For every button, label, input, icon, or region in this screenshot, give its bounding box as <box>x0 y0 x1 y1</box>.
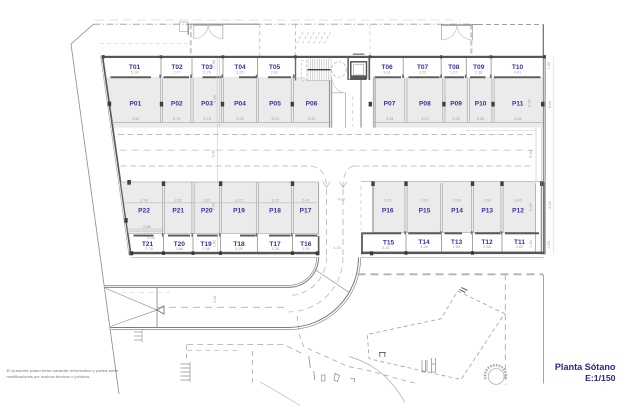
svg-text:3.23: 3.23 <box>384 199 391 203</box>
svg-text:2.78: 2.78 <box>145 247 152 251</box>
svg-text:2.75: 2.75 <box>173 117 180 121</box>
svg-text:2.88: 2.88 <box>176 247 183 251</box>
svg-text:P10: P10 <box>475 101 487 108</box>
svg-text:5.00: 5.00 <box>212 150 216 157</box>
svg-text:P01: P01 <box>130 101 142 108</box>
svg-text:P13: P13 <box>481 208 493 215</box>
svg-text:P19: P19 <box>233 208 245 215</box>
svg-text:2.77: 2.77 <box>173 71 180 75</box>
svg-text:4.00: 4.00 <box>213 296 217 303</box>
svg-text:3.23: 3.23 <box>421 199 428 203</box>
svg-text:4.41: 4.41 <box>514 71 521 75</box>
svg-text:5.00: 5.00 <box>548 101 552 108</box>
svg-text:3.23: 3.23 <box>271 117 278 121</box>
svg-text:2.37: 2.37 <box>450 71 457 75</box>
svg-text:P06: P06 <box>306 101 318 108</box>
svg-text:3.25: 3.25 <box>236 71 243 75</box>
svg-text:3.82: 3.82 <box>516 245 523 249</box>
svg-text:2.88: 2.88 <box>483 245 490 249</box>
svg-text:4.20: 4.20 <box>333 246 340 250</box>
svg-text:5.00: 5.00 <box>529 150 533 157</box>
svg-text:1.80: 1.80 <box>547 62 551 69</box>
svg-text:P05: P05 <box>269 101 281 108</box>
svg-text:3.23: 3.23 <box>236 117 243 121</box>
svg-text:P16: P16 <box>382 208 394 215</box>
svg-text:Planta Sótano: Planta Sótano <box>555 362 616 372</box>
svg-text:P18: P18 <box>269 208 281 215</box>
svg-text:3.23: 3.23 <box>271 199 278 203</box>
svg-text:P12: P12 <box>512 208 524 215</box>
svg-text:2.62: 2.62 <box>203 199 210 203</box>
svg-text:1.60: 1.60 <box>213 240 217 247</box>
svg-text:P07: P07 <box>384 101 396 108</box>
svg-text:2.43: 2.43 <box>302 199 309 203</box>
svg-text:2.76: 2.76 <box>203 71 210 75</box>
svg-text:P17: P17 <box>300 208 312 215</box>
svg-text:P08: P08 <box>419 101 431 108</box>
svg-text:3.23: 3.23 <box>421 117 428 121</box>
svg-text:P15: P15 <box>419 208 431 215</box>
svg-text:modificaciones por motivos téc: modificaciones por motivos técnicos o ju… <box>7 374 91 379</box>
svg-text:P22: P22 <box>138 208 150 215</box>
svg-text:P02: P02 <box>171 101 183 108</box>
svg-text:2.98: 2.98 <box>143 225 150 229</box>
svg-text:1.80: 1.80 <box>547 241 551 248</box>
svg-text:5.00: 5.00 <box>529 203 533 210</box>
svg-text:5.00: 5.00 <box>528 99 532 106</box>
svg-text:2.63: 2.63 <box>484 199 491 203</box>
svg-text:3.33: 3.33 <box>386 117 393 121</box>
svg-text:4.28: 4.28 <box>514 117 521 121</box>
svg-text:P21: P21 <box>172 208 184 215</box>
svg-text:P04: P04 <box>234 101 246 108</box>
svg-text:4.35: 4.35 <box>132 117 139 121</box>
svg-text:P03: P03 <box>201 101 213 108</box>
svg-text:5.00: 5.00 <box>212 203 216 210</box>
svg-text:1.80: 1.80 <box>529 240 533 247</box>
svg-text:2.30: 2.30 <box>452 117 459 121</box>
svg-text:5.18: 5.18 <box>131 71 138 75</box>
svg-text:3.25: 3.25 <box>419 71 426 75</box>
svg-text:2.81: 2.81 <box>271 71 278 75</box>
svg-text:P09: P09 <box>450 101 462 108</box>
svg-text:3.61: 3.61 <box>383 71 390 75</box>
svg-text:2.75: 2.75 <box>203 117 210 121</box>
svg-text:3.28: 3.28 <box>420 245 427 249</box>
svg-text:3.23: 3.23 <box>235 199 242 203</box>
svg-text:2.62: 2.62 <box>175 199 182 203</box>
svg-text:3.28: 3.28 <box>271 247 278 251</box>
svg-text:4.02: 4.02 <box>338 198 345 202</box>
svg-text:3.42: 3.42 <box>514 199 521 203</box>
svg-text:3.04: 3.04 <box>147 236 154 240</box>
svg-text:3.78: 3.78 <box>140 199 147 203</box>
svg-text:5.00: 5.00 <box>548 201 552 208</box>
svg-text:2.38: 2.38 <box>475 71 482 75</box>
svg-text:2.58: 2.58 <box>202 247 209 251</box>
svg-text:2.35: 2.35 <box>302 247 309 251</box>
svg-text:3.43: 3.43 <box>308 117 315 121</box>
svg-text:4.18: 4.18 <box>382 246 389 250</box>
svg-text:2.63: 2.63 <box>453 199 460 203</box>
svg-text:5.00: 5.00 <box>213 95 217 102</box>
svg-text:2.88: 2.88 <box>453 245 460 249</box>
svg-text:P11: P11 <box>512 101 524 108</box>
svg-text:2.35: 2.35 <box>477 117 484 121</box>
svg-text:3.25: 3.25 <box>235 247 242 251</box>
svg-text:1.60: 1.60 <box>212 60 216 67</box>
svg-text:El presente plano tiene ca: El presente plano tiene carácter informa… <box>7 368 120 373</box>
svg-text:E:1/150: E:1/150 <box>585 373 616 383</box>
svg-text:P14: P14 <box>451 208 463 215</box>
